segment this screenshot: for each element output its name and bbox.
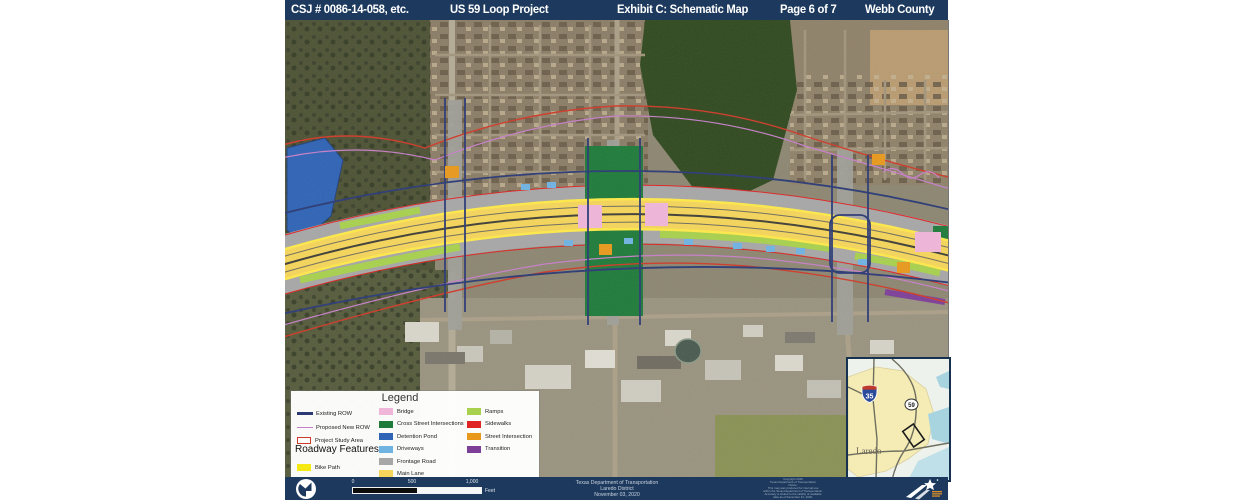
driveways-swatch [379,446,393,453]
svg-text:59: 59 [908,403,915,409]
us-59-shield: 59 [905,399,918,410]
footer-bar: 0 500 1,000 Feet Texas Department of Tra… [285,477,948,500]
legend-item-proposed-row: Proposed New ROW [297,423,370,432]
legend-item-sidewalks: Sidewalks [467,420,511,429]
svg-text:35: 35 [866,394,874,401]
frontage-road-swatch [379,458,393,465]
ramps-swatch [467,408,481,415]
bridge-swatch [379,408,393,415]
scale-bar-graphic [352,487,482,494]
legend-item-existing-row: Existing ROW [297,409,352,418]
copyright-disclaimer: Copyright 2020 Texas Department of Trans… [733,478,853,499]
city-label: Laredo [856,446,882,456]
street-intersection-swatch [467,433,481,440]
proposed-row-swatch [297,427,313,429]
csj-number: CSJ # 0086-14-058, etc. [291,2,409,16]
legend-item-cross-street: Cross Street Intersections [379,420,464,429]
legend-item-street-intersection: Street Intersection [467,432,532,441]
main-lane-swatch [379,470,393,477]
exhibit-page: CSJ # 0086-14-058, etc. US 59 Loop Proje… [285,0,948,500]
legend-item-transition: Transition [467,445,510,454]
scale-unit: Feet [485,488,495,494]
legend-item-ramps: Ramps [467,407,503,416]
page-number: Page 6 of 7 [780,2,836,16]
consultant-logo [295,478,317,500]
legend-item-detention-pond: Detention Pond [379,432,437,441]
exhibit-title: Exhibit C: Schematic Map [617,2,748,16]
txdot-logo [896,477,946,500]
legend-item-driveways: Driveways [379,445,424,454]
location-inset-map: 35 59 Laredo [846,357,951,482]
scale-1000: 1,000 [466,479,479,485]
scale-bar: 0 500 1,000 Feet [349,479,499,499]
legend-item-bridge: Bridge [379,407,414,416]
title-bar: CSJ # 0086-14-058, etc. US 59 Loop Proje… [285,0,948,20]
scale-0: 0 [352,479,355,485]
sidewalks-swatch [467,421,481,428]
legend: Legend Existing ROW Proposed New ROW Pro… [291,391,539,477]
county-name: Webb County [865,2,934,16]
roadway-features-title: Roadway Features [295,444,379,455]
existing-row-swatch [297,412,313,415]
map-date: November 03, 2020 [537,492,697,498]
detention-pond-swatch [379,433,393,440]
legend-item-frontage-road: Frontage Road [379,457,436,466]
project-name: US 59 Loop Project [450,2,548,16]
study-area-swatch [297,437,311,444]
bike-path-swatch [297,464,311,471]
legend-item-bike-path: Bike Path [297,463,340,472]
scale-500: 500 [408,479,416,485]
transition-swatch [467,446,481,453]
cross-street-swatch [379,421,393,428]
agency-block: Texas Department of Transportation Lared… [537,480,697,499]
legend-title: Legend [291,392,509,404]
